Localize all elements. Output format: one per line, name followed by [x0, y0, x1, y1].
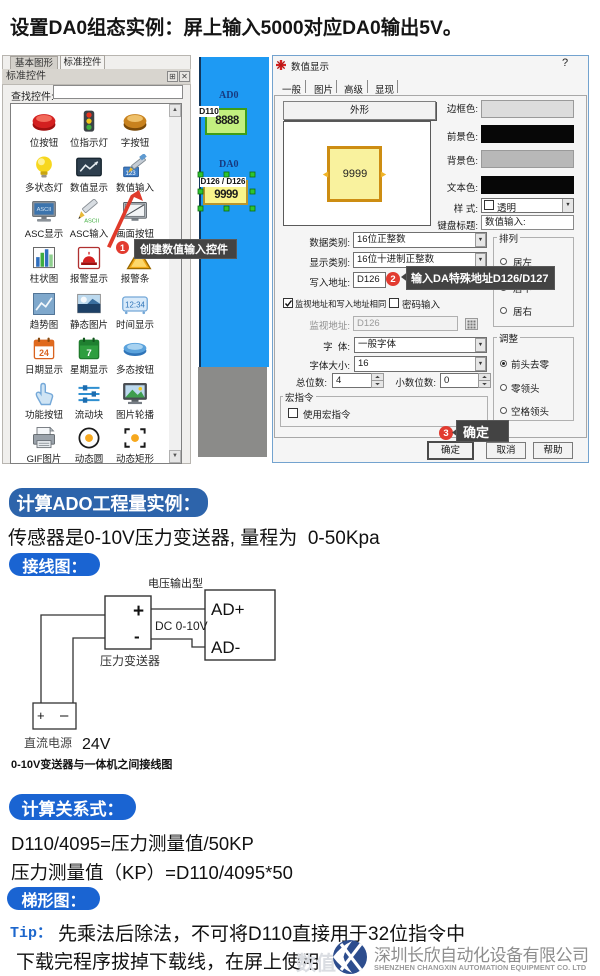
svg-text:12:34: 12:34 — [125, 301, 145, 310]
svg-text:+: + — [37, 708, 45, 723]
svg-text:7: 7 — [86, 348, 91, 359]
svg-text:24: 24 — [39, 348, 49, 358]
svg-text:ASCII: ASCII — [84, 219, 99, 225]
svg-text:压力变送器: 压力变送器 — [100, 653, 160, 668]
svg-text:ASCII: ASCII — [37, 207, 52, 213]
svg-text:AD-: AD- — [211, 638, 240, 657]
svg-text:电压输出型: 电压输出型 — [148, 576, 203, 590]
svg-text:24V: 24V — [82, 736, 111, 753]
svg-text:DC 0-10V: DC 0-10V — [155, 619, 208, 633]
svg-text:AD+: AD+ — [211, 600, 245, 619]
svg-text:直流电源: 直流电源 — [24, 736, 72, 750]
svg-text:–: – — [60, 707, 69, 724]
svg-text:-: - — [134, 627, 140, 646]
svg-text:+: + — [133, 601, 144, 622]
svg-text:0-10V变送器与一体机之间接线图: 0-10V变送器与一体机之间接线图 — [11, 757, 172, 771]
